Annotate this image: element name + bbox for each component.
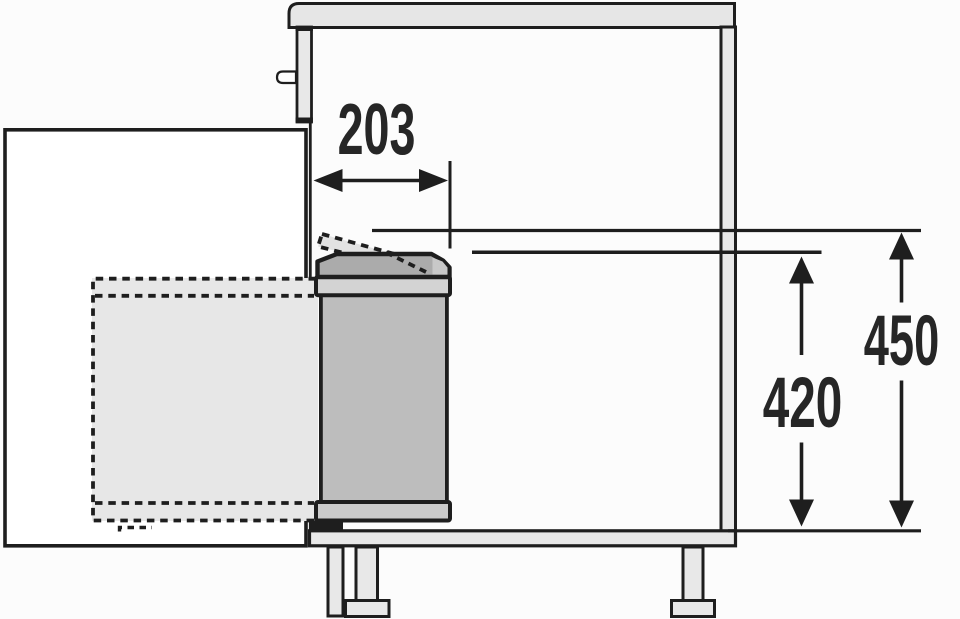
svg-text:450: 450 xyxy=(864,301,939,381)
svg-text:203: 203 xyxy=(338,89,416,170)
svg-text:420: 420 xyxy=(763,362,843,442)
